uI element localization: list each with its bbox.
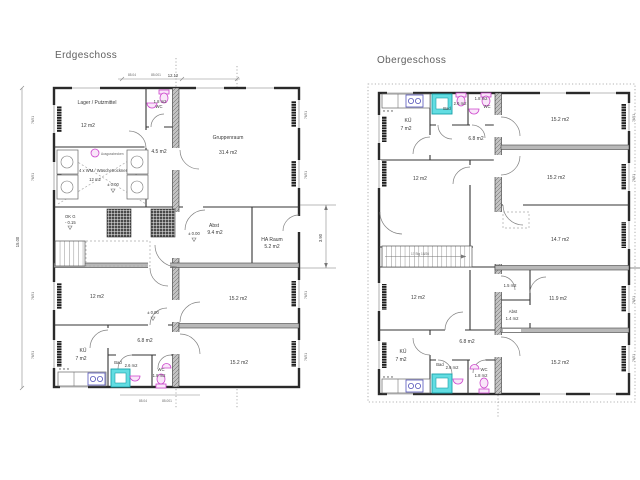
og-room-label: 1.5 m2 xyxy=(504,283,517,288)
eg-room-label: 12 m2 xyxy=(81,123,95,129)
og-stairs: 17 Stg 18/26 xyxy=(382,246,472,267)
eg-room-label: 31.4 m2 xyxy=(219,150,237,156)
radiator-icon xyxy=(622,104,627,130)
eg-room-label: 9.4 m2 xyxy=(207,230,223,236)
og-room-label: 1.8 m2 xyxy=(475,96,488,101)
eg-window-right-4 xyxy=(292,340,302,368)
eg-room-label: Bad xyxy=(114,360,122,365)
og-room-label: 15.2 m2 xyxy=(551,360,569,366)
og-window-right-2 xyxy=(622,163,632,191)
eg-room-label: KÜ xyxy=(80,347,87,354)
eg-room-label: 4.5 m2 xyxy=(151,149,167,155)
og-room-label: 2.6 m2 xyxy=(446,365,459,370)
og-room-label: 11.9 m2 xyxy=(549,296,567,302)
eg-room-label: 1.8 m2 xyxy=(153,373,166,378)
eg-window-left-3 xyxy=(52,282,62,310)
kitchen-counter-icon xyxy=(382,94,430,112)
eg-dim: 85.04 xyxy=(139,399,147,403)
og-room-label: 2.6 m2 xyxy=(454,101,467,106)
radiator-icon xyxy=(382,116,387,142)
og-room-label: 12 m2 xyxy=(413,176,427,182)
og-room-label: 14.7 m2 xyxy=(551,237,569,243)
sink-icon xyxy=(470,365,479,370)
shower-tray-icon xyxy=(115,373,126,383)
og-room-label: 6.8 m2 xyxy=(468,136,484,142)
window-mark: 76/51 xyxy=(632,296,636,304)
eg-dim: 15.00 xyxy=(15,236,20,247)
eg-dim: 3.90 xyxy=(318,233,323,242)
og-doors xyxy=(380,117,546,374)
eg-room-label: 15.2 m2 xyxy=(230,360,248,366)
og-room-label: 15.2 m2 xyxy=(547,175,565,181)
utility-sink-icon xyxy=(91,149,99,157)
kitchen-counter-icon xyxy=(382,376,430,393)
og-room-label: KÜ xyxy=(400,348,407,355)
window-mark: 76/51 xyxy=(31,351,35,359)
radiator-icon xyxy=(622,286,627,312)
eg-room-label: 15.2 m2 xyxy=(229,296,247,302)
erdgeschoss-plan: Erdgeschoss xyxy=(15,50,336,408)
window-mark: 76/51 xyxy=(632,174,636,182)
radiator-icon xyxy=(382,342,387,368)
window-mark: 76/51 xyxy=(31,173,35,181)
og-window-left-1 xyxy=(377,115,387,143)
radiator-icon xyxy=(292,341,297,367)
eg-level-mark: ± 0.00 xyxy=(147,310,159,315)
og-window-right-1 xyxy=(622,103,632,131)
eg-level-mark: ± 0.00 xyxy=(188,231,200,236)
og-room-label: KÜ xyxy=(405,117,412,124)
og-room-label: WC xyxy=(484,104,491,109)
window-mark: 76/51 xyxy=(632,114,636,122)
eg-room-label: WC xyxy=(158,367,165,372)
eg-room-label: 6.8 m2 xyxy=(137,338,153,344)
eg-window-right-1 xyxy=(292,100,302,128)
eg-fixture-label: Ausgussbecken xyxy=(101,152,124,156)
og-stair-label: 17 Stg 18/26 xyxy=(411,252,429,256)
kitchen-counter-icon xyxy=(58,368,106,386)
window-mark: 76/51 xyxy=(31,116,35,124)
og-room-label: 12 m2 xyxy=(411,295,425,301)
eg-room-label: 2.6 m2 xyxy=(125,363,138,368)
window-mark: 76/51 xyxy=(304,111,308,119)
og-room-label: 6.8 m2 xyxy=(459,339,475,345)
sink-icon xyxy=(469,109,479,114)
window-mark: 76/51 xyxy=(304,353,308,361)
og-window-right-4 xyxy=(622,285,632,313)
window-mark: 76/51 xyxy=(304,171,308,179)
eg-room-label: 4 x WM / Wäschetrockner xyxy=(79,168,128,173)
window-mark: 76/51 xyxy=(304,291,308,299)
light-well-grate-icon xyxy=(151,209,175,237)
og-window-right-5 xyxy=(622,345,632,373)
eg-room-label: 12 m2 xyxy=(89,177,101,182)
og-room-label: 1.8 m2 xyxy=(475,373,488,378)
og-room-label: 15.2 m2 xyxy=(551,117,569,123)
og-room-label: 1.4 m2 xyxy=(506,316,519,321)
radiator-icon xyxy=(622,222,627,248)
window-mark: 76/51 xyxy=(31,292,35,300)
washing-machine-icon xyxy=(57,150,148,199)
radiator-icon xyxy=(622,346,627,372)
eg-window-left-4 xyxy=(52,340,62,368)
og-window-left-2 xyxy=(377,160,387,188)
radiator-icon xyxy=(292,101,297,127)
eg-dim: 85.001 xyxy=(151,73,161,77)
og-room-label: WC xyxy=(481,367,488,372)
radiator-icon xyxy=(292,281,297,307)
eg-window-right-3 xyxy=(292,280,302,308)
eg-window-left-1 xyxy=(52,105,62,133)
og-window-left-4 xyxy=(377,341,387,369)
toilet-icon xyxy=(479,378,489,393)
eg-fixtures xyxy=(57,90,171,388)
eg-room-label: WC xyxy=(156,104,163,109)
eg-room-label: Gruppenraum xyxy=(213,135,244,141)
sink-icon xyxy=(130,376,140,381)
eg-level-label: - 0.15 xyxy=(65,220,76,225)
window-mark: 76/51 xyxy=(632,354,636,362)
radiator-icon xyxy=(57,341,62,367)
og-room-label: 7 m2 xyxy=(395,357,406,363)
eg-window-right-2 xyxy=(292,160,302,188)
eg-dim: 85.04 xyxy=(128,73,136,77)
eg-room-label: 5.2 m2 xyxy=(264,244,280,250)
cad-sheet: Erdgeschoss xyxy=(0,0,640,480)
radiator-icon xyxy=(57,106,62,132)
sink-icon xyxy=(453,379,463,384)
floorplan-drawing: Erdgeschoss xyxy=(0,0,640,480)
obergeschoss-plan: Obergeschoss xyxy=(368,55,640,418)
shower-tray-icon xyxy=(436,378,448,388)
og-room-label: Abst xyxy=(509,309,518,314)
eg-room-label: 7 m2 xyxy=(75,356,86,362)
og-title: Obergeschoss xyxy=(377,55,446,66)
og-room-label: Bad xyxy=(443,106,451,111)
light-well-grate-icon xyxy=(107,209,131,237)
og-window-left-3 xyxy=(377,283,387,311)
eg-level-mark: ± 0.00 xyxy=(107,182,119,187)
radiator-icon xyxy=(622,164,627,190)
eg-level-label: OK G xyxy=(65,214,75,219)
eg-room-label: Abst xyxy=(209,223,220,229)
og-room-label: Bad xyxy=(436,362,444,367)
og-window-right-3 xyxy=(622,221,632,249)
eg-room-label: 12 m2 xyxy=(90,294,104,300)
og-room-labels: KÜ 7 m2 Bad 2.6 m2 1.8 m2 WC 6.8 m2 15.2… xyxy=(395,96,569,378)
eg-dim: 12.12 xyxy=(168,73,179,78)
eg-title: Erdgeschoss xyxy=(55,50,117,61)
radiator-icon xyxy=(382,284,387,310)
eg-room-label: Lager / Putzmittel xyxy=(78,100,117,106)
eg-dim: 85.001 xyxy=(162,399,172,403)
radiator-icon xyxy=(57,283,62,309)
radiator-icon xyxy=(292,161,297,187)
og-room-label: 7 m2 xyxy=(400,126,411,132)
radiator-icon xyxy=(382,161,387,187)
eg-room-label: HA Raum xyxy=(261,237,282,243)
og-windows xyxy=(377,91,632,397)
